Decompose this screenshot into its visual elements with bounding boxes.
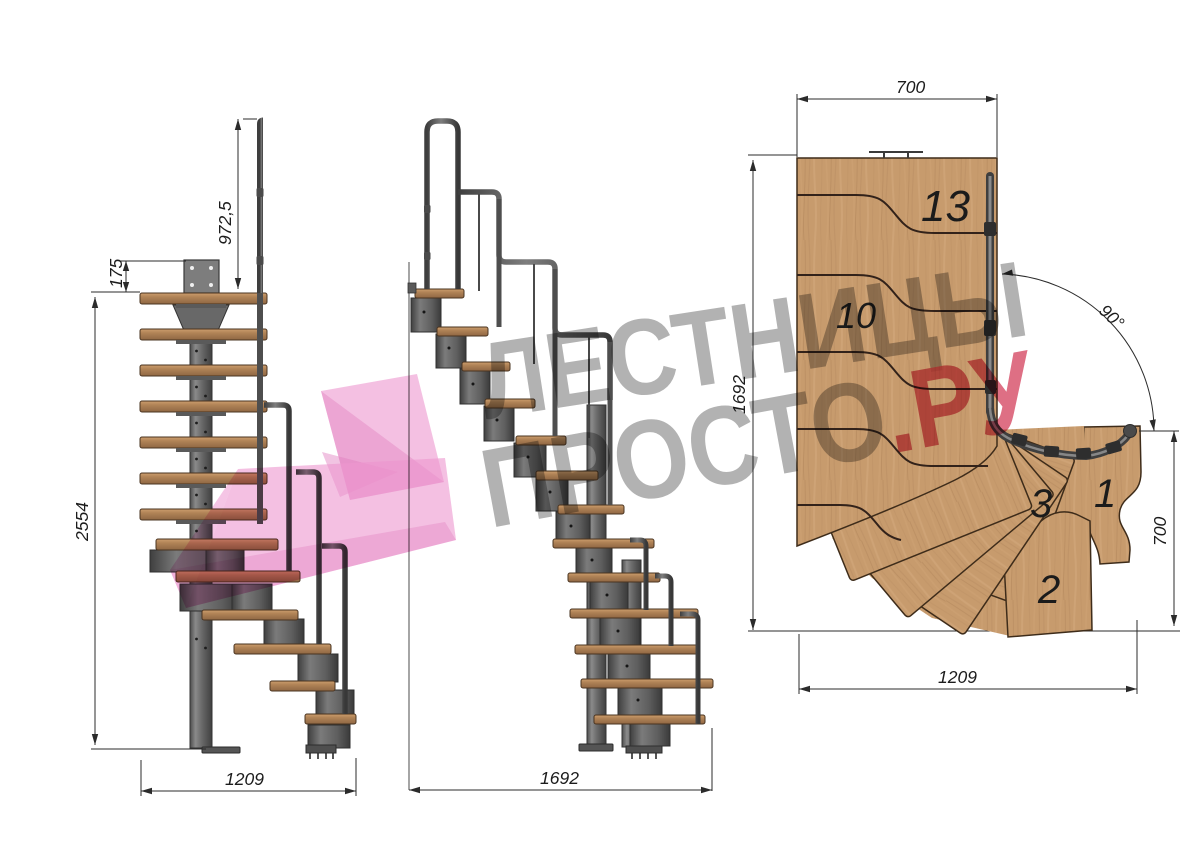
svg-text:700: 700	[896, 77, 925, 97]
svg-text:972,5: 972,5	[215, 201, 235, 245]
svg-text:2554: 2554	[72, 502, 92, 542]
svg-text:1: 1	[1094, 472, 1116, 516]
svg-text:1209: 1209	[225, 769, 264, 789]
svg-text:1209: 1209	[938, 667, 977, 687]
svg-text:3: 3	[1030, 482, 1052, 526]
svg-text:175: 175	[106, 259, 126, 288]
svg-text:13: 13	[921, 182, 970, 231]
svg-text:2: 2	[1037, 568, 1060, 612]
svg-text:700: 700	[1150, 517, 1170, 546]
svg-text:1692: 1692	[540, 768, 579, 788]
